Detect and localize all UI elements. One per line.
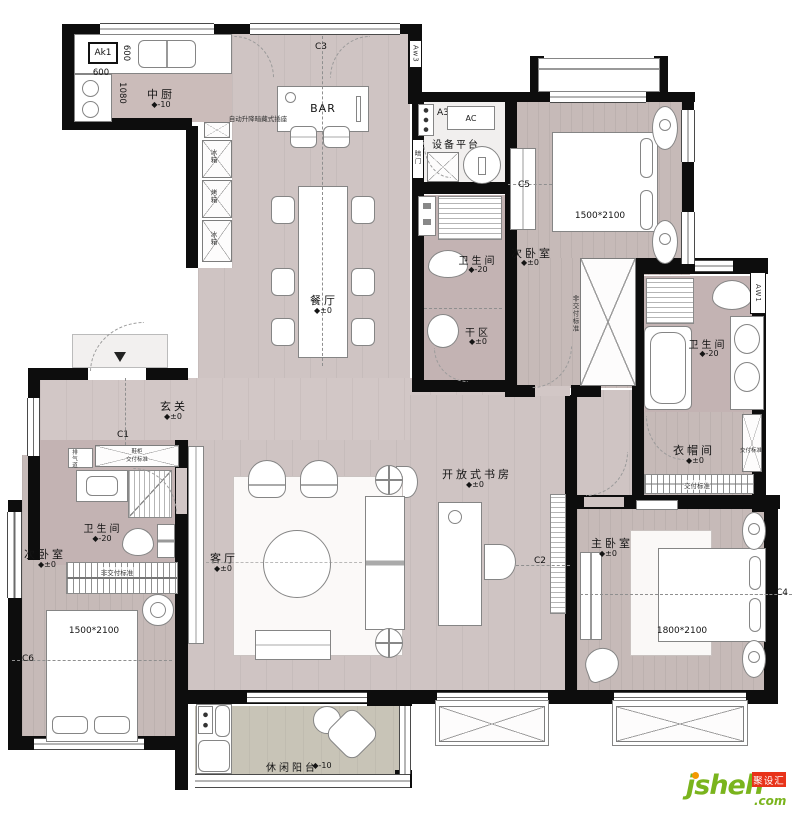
- nightstand-lamp: [659, 233, 671, 245]
- window: [681, 212, 695, 264]
- door-opening: [584, 497, 624, 507]
- faucet-box: [198, 706, 213, 734]
- ac-label: AC: [466, 114, 477, 123]
- sink-basin: [734, 324, 760, 354]
- door-opening: [536, 386, 570, 396]
- laundry-sink: [215, 705, 230, 737]
- window: [399, 706, 411, 774]
- socket-note: 自动升降暗藏式插座: [229, 113, 288, 123]
- bay-window: [538, 58, 660, 92]
- master-elev: ◆±0: [599, 549, 617, 558]
- bath-left-label: 卫生间: [84, 520, 123, 535]
- meter-box: [418, 104, 434, 136]
- centerline: [12, 660, 172, 661]
- aw3-label: Aw3: [412, 45, 420, 63]
- c5-mark: C5: [518, 180, 530, 190]
- corridor-floor: [198, 268, 234, 380]
- bench: [255, 630, 331, 660]
- bar-sink: [285, 92, 296, 103]
- bed-size-label: 1500*2100: [575, 211, 625, 221]
- entry-direction-marker: [114, 352, 126, 362]
- balcony-label: 休闲阳台: [266, 759, 318, 774]
- floor-plan: Ak1 冰箱 烤箱 冰箱 600 600 1080 BAR 自动升降暗藏式插座 …: [0, 0, 800, 814]
- pedestal-sink: [427, 314, 459, 348]
- balcony-elev: ◆-10: [312, 761, 331, 770]
- oven-label: 烤箱: [208, 189, 218, 204]
- bookshelf: [550, 494, 566, 614]
- door-opening: [176, 468, 187, 514]
- pillow: [640, 138, 653, 178]
- kitchen-elev: ◆-10: [151, 100, 170, 109]
- pillow: [749, 556, 761, 590]
- fridge-label: 冰箱: [208, 231, 218, 246]
- window: [550, 91, 646, 103]
- dining-chair: [271, 196, 295, 224]
- dining-chair: [351, 268, 375, 296]
- tv-cabinet: [188, 446, 204, 644]
- logo-dot-icon: [692, 772, 699, 779]
- aw1-tag: AW1: [750, 272, 766, 314]
- dining-chair: [351, 196, 375, 224]
- wardrobe-hatched: [742, 414, 762, 472]
- dining-chair: [351, 318, 375, 346]
- desk-lamp: [448, 510, 462, 524]
- floor-lamp: [375, 465, 403, 495]
- toilet: [122, 528, 154, 556]
- c1-mark: C1: [117, 430, 129, 440]
- wall: [565, 395, 577, 698]
- wall: [367, 690, 412, 706]
- toilet: [712, 280, 752, 310]
- dim-1080: 1080: [117, 82, 127, 104]
- centerline: [322, 36, 323, 366]
- c6-mark: C6: [22, 654, 34, 664]
- stove-burner: [82, 80, 99, 97]
- wall: [186, 126, 198, 268]
- pillow: [640, 190, 653, 230]
- dining-elev: ◆±0: [314, 306, 332, 315]
- wall-decor: [636, 500, 678, 510]
- non-delivery-note: 非交付标准: [570, 295, 580, 333]
- coffee-table: [263, 530, 331, 598]
- wardrobe-hatched: [580, 258, 636, 386]
- window: [7, 512, 22, 598]
- bath-mid-elev: ◆-20: [468, 265, 487, 274]
- sliding-door: [247, 692, 367, 703]
- aw3-tag: Aw3: [409, 40, 422, 68]
- wall: [412, 182, 514, 194]
- wall: [505, 385, 535, 397]
- sink-basin: [86, 476, 118, 496]
- dining-chair: [271, 318, 295, 346]
- sofa: [365, 496, 405, 630]
- window: [681, 110, 695, 162]
- bed-size-label: 1500*2100: [69, 626, 119, 636]
- c4-mark: C4: [776, 588, 788, 598]
- vent-note: 排气道: [70, 449, 78, 469]
- c3-mark: C3: [315, 42, 327, 52]
- bedroom-bl-elev: ◆±0: [38, 560, 56, 569]
- fridge-label: 冰箱: [208, 149, 218, 164]
- watermark-logo: jsheh 聚设汇 .com: [686, 768, 796, 812]
- window: [695, 260, 733, 272]
- dim-600: 600: [93, 68, 109, 78]
- bath-master-elev: ◆-20: [699, 349, 718, 358]
- pillow: [749, 598, 761, 632]
- logo-tld: .com: [754, 794, 786, 808]
- centerline: [206, 562, 362, 563]
- study-elev: ◆±0: [466, 480, 484, 489]
- entry-elev: ◆±0: [164, 412, 182, 421]
- dim-600: 600: [121, 45, 131, 61]
- ac-unit: AC: [447, 106, 495, 130]
- ak1-tag: Ak1: [88, 42, 118, 64]
- bay-window-glazing: [439, 706, 545, 742]
- room-divider: [424, 308, 502, 309]
- stove-burner: [82, 101, 99, 118]
- window: [250, 23, 400, 35]
- bedroom-tr-elev: ◆±0: [521, 258, 539, 267]
- closet-elev: ◆±0: [686, 456, 704, 465]
- ak1-label: Ak1: [94, 48, 111, 58]
- non-delivery-note: 非交付标准: [101, 567, 134, 577]
- bar-stool: [290, 126, 317, 148]
- wall: [62, 24, 74, 128]
- hidden-door-note: 暗门: [412, 150, 422, 165]
- living-elev: ◆±0: [214, 564, 232, 573]
- dining-chair: [271, 268, 295, 296]
- dry-area-elev: ◆±0: [469, 337, 487, 346]
- nightstand-lamp: [659, 119, 671, 131]
- delivery-note: 交付标准: [684, 480, 710, 490]
- nightstand-lamp: [748, 523, 760, 535]
- bar-fixture: [356, 96, 361, 122]
- aw1-label: AW1: [754, 284, 762, 303]
- dresser: [580, 552, 602, 640]
- logo-badge: 聚设汇: [752, 772, 786, 787]
- wall: [28, 368, 40, 560]
- cabinet: [204, 122, 230, 138]
- c2-mark: C2: [534, 556, 546, 566]
- bed-size-label: 1800*2100: [657, 626, 707, 636]
- window: [27, 398, 40, 456]
- washing-machine: [198, 740, 230, 772]
- water-heater-detail: [478, 157, 486, 175]
- pillow: [52, 716, 88, 734]
- shower: [646, 278, 694, 324]
- bar-stool: [323, 126, 350, 148]
- armchair: [248, 460, 286, 498]
- entry-door-arc: [90, 322, 144, 372]
- bar-label: BAR: [310, 102, 336, 115]
- bath-cabinet: [157, 524, 175, 558]
- bay-window-glazing: [616, 706, 744, 742]
- washer: [438, 196, 502, 240]
- pillow: [94, 716, 130, 734]
- wall: [764, 505, 778, 704]
- delivery-note: 交付标准: [126, 455, 148, 463]
- shoe-cabinet-note: 鞋柜: [131, 447, 142, 455]
- kitchen-sink: [138, 40, 196, 68]
- stool-inner: [150, 602, 166, 618]
- sink-basin: [734, 362, 760, 392]
- dining-table: [298, 186, 348, 358]
- bath-left-elev: ◆-20: [92, 534, 111, 543]
- utility-box: [418, 196, 436, 236]
- floor-lamp: [375, 628, 403, 658]
- armchair: [300, 460, 338, 498]
- window: [195, 774, 410, 788]
- nightstand-lamp: [748, 651, 760, 663]
- delivery-note: 交付标准: [740, 446, 762, 454]
- bathtub-inner: [650, 332, 686, 404]
- desk-chair: [484, 544, 516, 580]
